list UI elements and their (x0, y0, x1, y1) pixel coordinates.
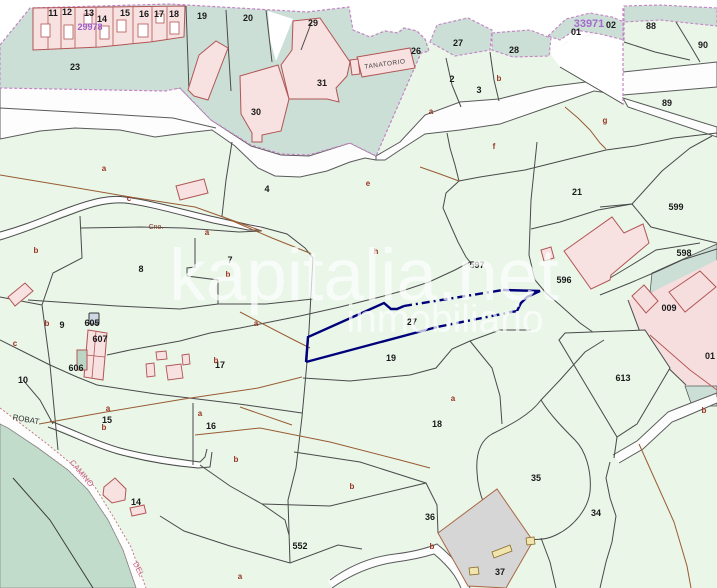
svg-text:c: c (13, 339, 18, 348)
svg-text:15: 15 (120, 8, 130, 18)
svg-text:12: 12 (62, 7, 72, 17)
svg-text:g: g (603, 116, 608, 125)
svg-text:9: 9 (59, 320, 64, 330)
svg-text:b: b (214, 356, 219, 365)
svg-text:c: c (127, 194, 132, 203)
svg-text:14: 14 (131, 497, 141, 507)
svg-text:26: 26 (411, 46, 421, 56)
svg-text:01: 01 (705, 351, 715, 361)
svg-text:a: a (451, 394, 456, 403)
svg-text:a: a (106, 404, 111, 413)
svg-text:18: 18 (432, 419, 442, 429)
svg-text:89: 89 (662, 98, 672, 108)
svg-text:552: 552 (292, 541, 307, 551)
svg-text:23: 23 (70, 62, 80, 72)
svg-text:b: b (350, 482, 355, 491)
svg-text:2: 2 (449, 74, 454, 84)
svg-text:35: 35 (531, 473, 541, 483)
svg-text:b: b (234, 455, 239, 464)
svg-text:a: a (198, 409, 203, 418)
svg-text:a: a (102, 164, 107, 173)
svg-text:606: 606 (68, 363, 83, 373)
svg-text:19: 19 (386, 353, 396, 363)
svg-text:605: 605 (84, 318, 99, 328)
svg-text:b: b (497, 74, 502, 83)
svg-text:21: 21 (572, 187, 582, 197)
svg-text:27: 27 (453, 38, 463, 48)
svg-text:10: 10 (18, 375, 28, 385)
svg-text:a: a (254, 319, 259, 328)
svg-text:e: e (366, 179, 371, 188)
svg-text:Cno.: Cno. (149, 224, 164, 231)
svg-text:b: b (34, 246, 39, 255)
svg-text:16: 16 (139, 9, 149, 19)
svg-text:33971: 33971 (574, 18, 605, 30)
svg-text:b: b (102, 423, 107, 432)
svg-text:16: 16 (206, 421, 216, 431)
svg-text:36: 36 (425, 512, 435, 522)
svg-text:11: 11 (48, 8, 58, 18)
svg-text:34: 34 (591, 508, 601, 518)
svg-text:b: b (45, 319, 50, 328)
svg-text:a: a (429, 107, 434, 116)
svg-text:19: 19 (197, 11, 207, 21)
svg-text:30: 30 (251, 107, 261, 117)
svg-text:31: 31 (317, 78, 327, 88)
svg-text:8: 8 (138, 264, 143, 274)
svg-text:613: 613 (615, 373, 630, 383)
svg-text:29: 29 (308, 18, 318, 28)
svg-text:4: 4 (264, 184, 269, 194)
svg-text:90: 90 (698, 40, 708, 50)
svg-text:a: a (238, 572, 243, 581)
svg-text:599: 599 (668, 202, 683, 212)
svg-text:3: 3 (476, 85, 481, 95)
svg-text:598: 598 (676, 248, 691, 258)
svg-text:88: 88 (646, 21, 656, 31)
svg-text:28: 28 (509, 45, 519, 55)
svg-text:607: 607 (92, 334, 107, 344)
svg-text:02: 02 (606, 20, 616, 30)
svg-text:29978: 29978 (77, 22, 102, 32)
svg-text:37: 37 (495, 567, 505, 577)
svg-text:f: f (493, 142, 496, 151)
svg-text:009: 009 (661, 303, 676, 313)
svg-text:inmobiliario: inmobiliario (346, 298, 543, 341)
svg-text:20: 20 (243, 13, 253, 23)
svg-text:b: b (430, 542, 435, 551)
svg-text:13: 13 (84, 8, 94, 18)
svg-text:17: 17 (154, 9, 164, 19)
svg-text:b: b (702, 406, 707, 415)
svg-text:18: 18 (169, 9, 179, 19)
